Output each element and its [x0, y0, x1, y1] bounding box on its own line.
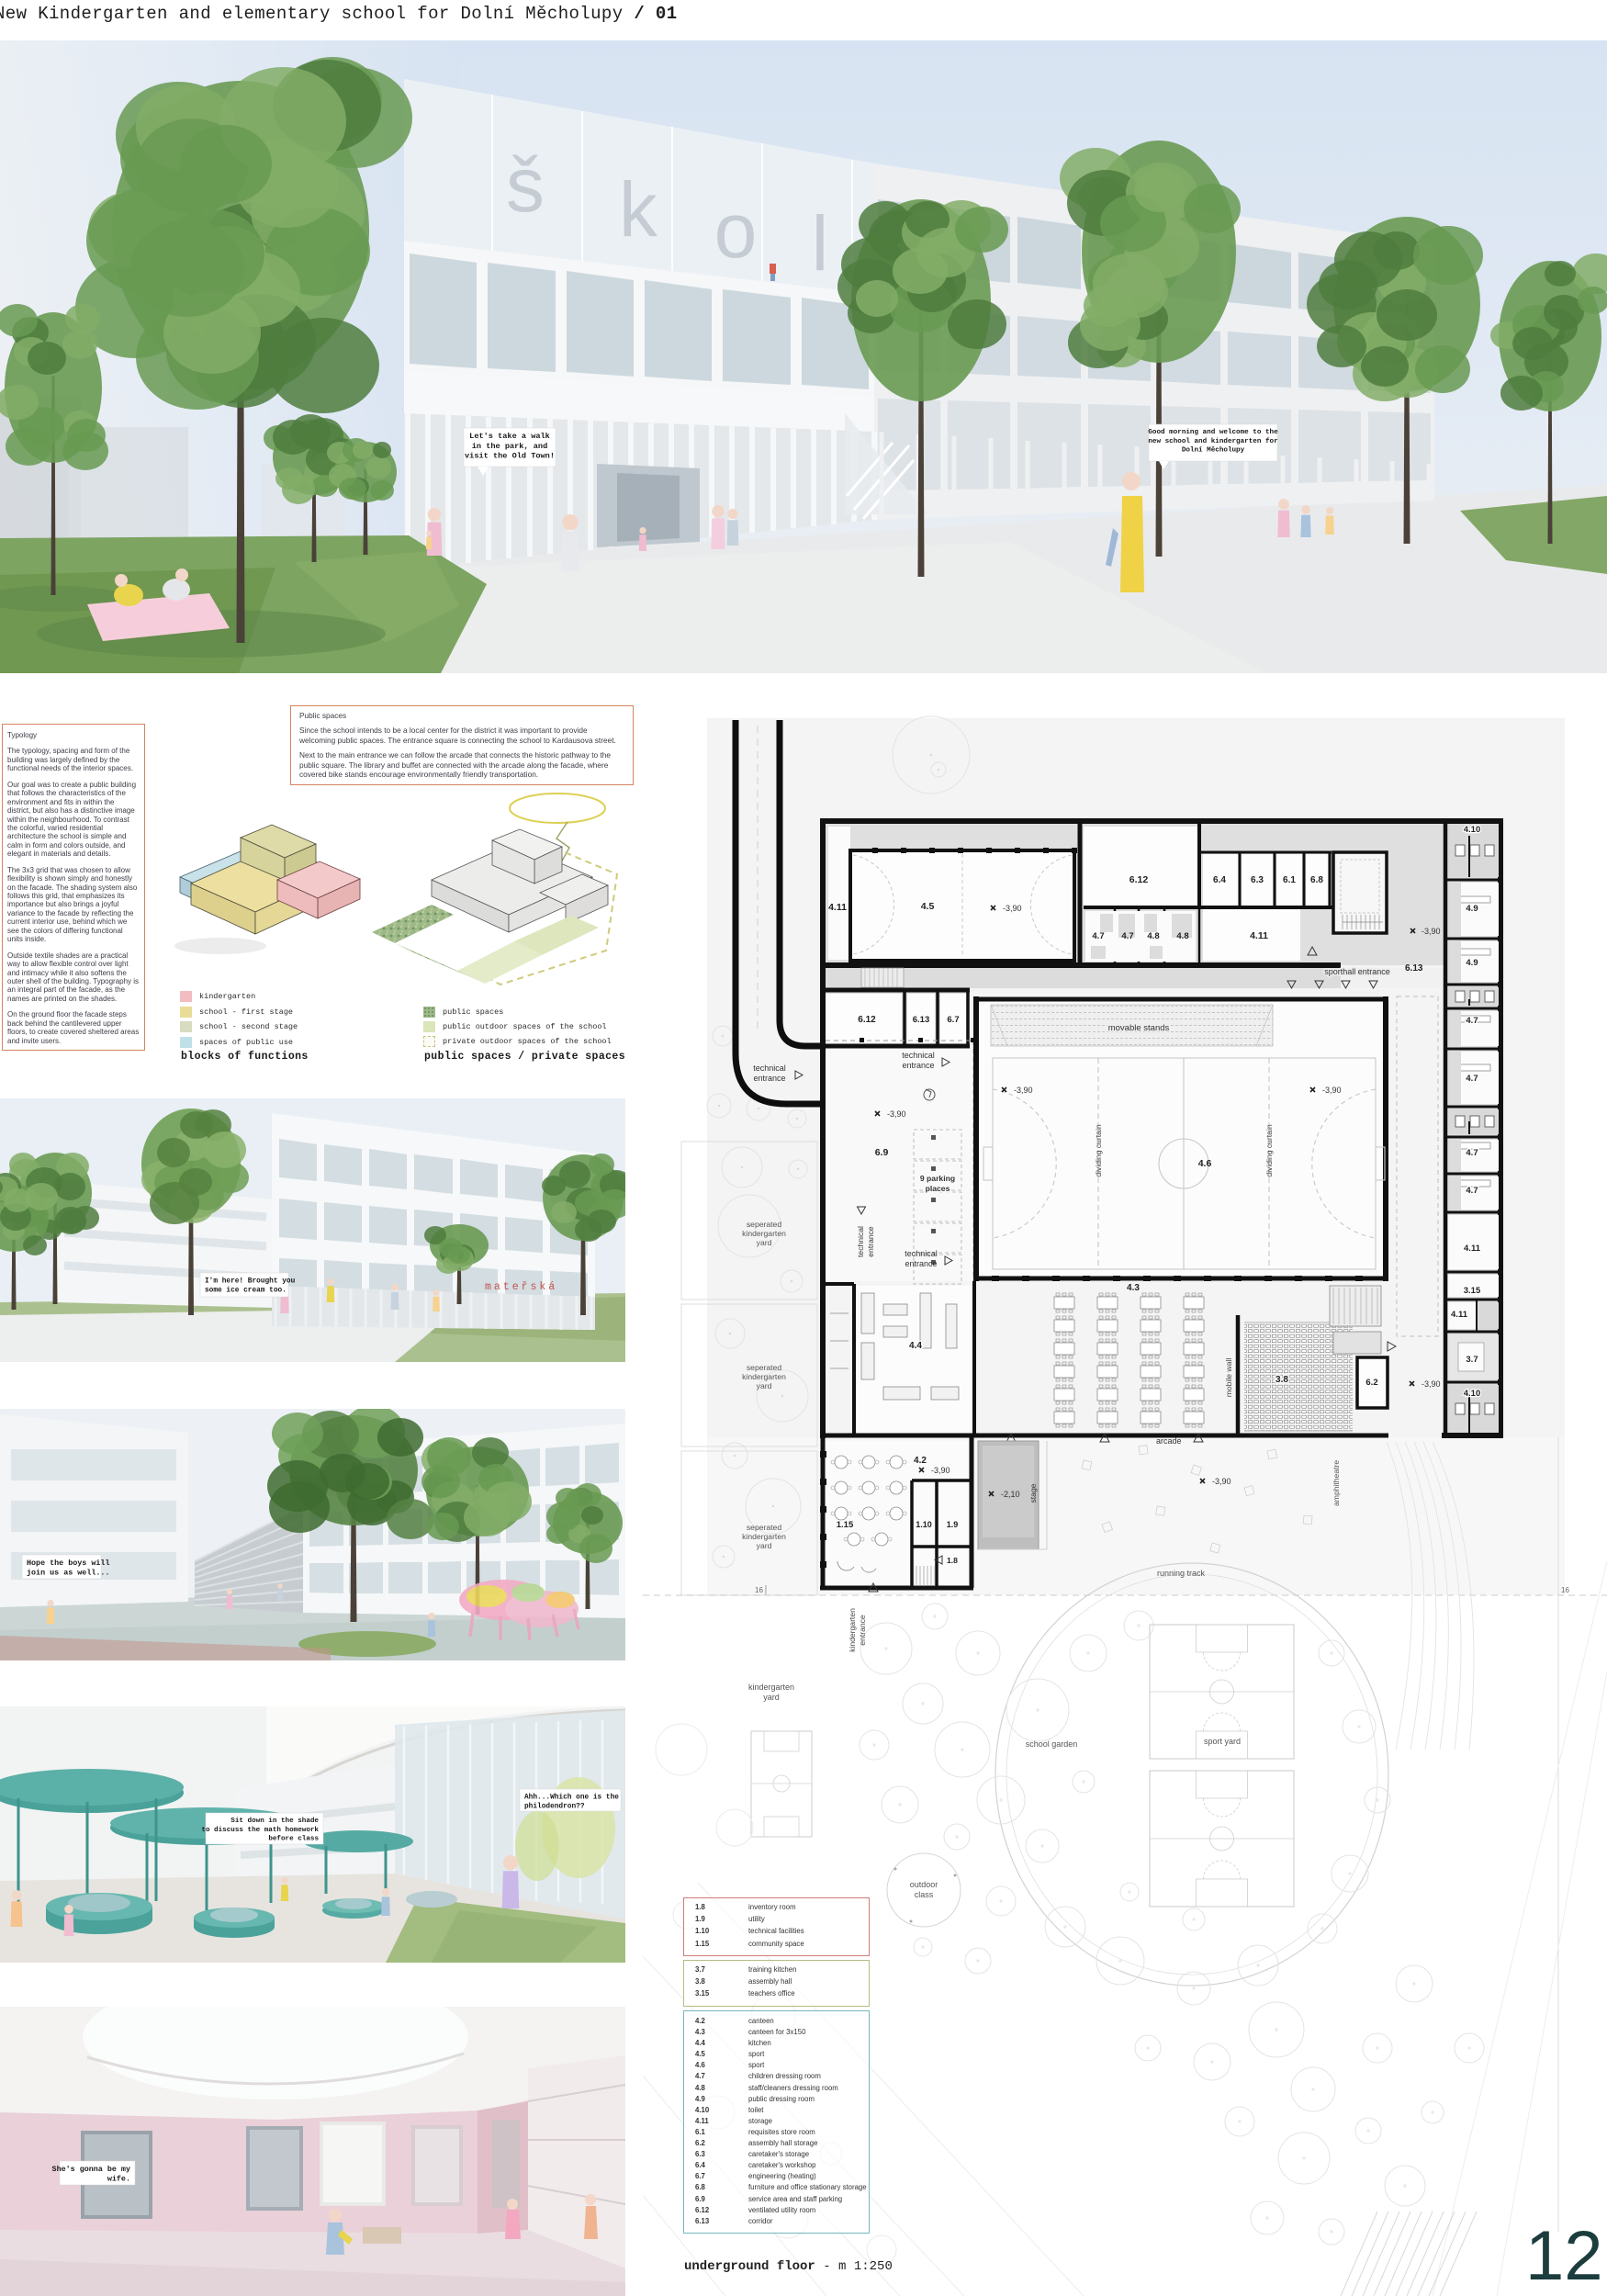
svg-text:in the park, and: in the park, and: [472, 442, 548, 451]
svg-text:-3,90: -3,90: [1422, 927, 1441, 936]
svg-text:Sit down in the shade: Sit down in the shade: [230, 1818, 319, 1825]
svg-text:3.7: 3.7: [1466, 1355, 1478, 1365]
svg-text:3.8: 3.8: [1275, 1375, 1288, 1385]
svg-text:entrance: entrance: [866, 1226, 875, 1257]
svg-text:class: class: [915, 1890, 934, 1899]
svg-text:entrance: entrance: [905, 1259, 937, 1268]
svg-text:4.7: 4.7: [1466, 1074, 1478, 1084]
svg-text:sporthall entrance: sporthall entrance: [1324, 967, 1390, 976]
svg-text:new school and kindergarten fo: new school and kindergarten for: [1148, 438, 1278, 445]
svg-text:6.12: 6.12: [858, 1015, 876, 1025]
svg-text:4.7: 4.7: [1121, 931, 1133, 941]
svg-text:seperated: seperated: [747, 1523, 781, 1532]
svg-text:4.7: 4.7: [1092, 931, 1104, 941]
svg-text:6.3: 6.3: [1251, 875, 1264, 885]
svg-text:4.11: 4.11: [1250, 930, 1268, 941]
svg-text:1.8: 1.8: [947, 1556, 958, 1565]
svg-text:3.15: 3.15: [1464, 1286, 1481, 1296]
svg-text:6.7: 6.7: [947, 1015, 959, 1025]
svg-text:l: l: [812, 200, 829, 287]
svg-text:dividing curtain: dividing curtain: [1094, 1124, 1103, 1177]
svg-text:-3,90: -3,90: [1322, 1086, 1342, 1095]
svg-text:6.1: 6.1: [1283, 875, 1296, 885]
svg-text:mateřská: mateřská: [485, 1281, 557, 1293]
svg-text:before class: before class: [268, 1836, 319, 1843]
svg-text:6.9: 6.9: [875, 1147, 889, 1158]
svg-text:4.7: 4.7: [1466, 1186, 1478, 1196]
svg-text:join us as well...: join us as well...: [27, 1569, 109, 1578]
svg-text:4.7: 4.7: [1466, 1148, 1478, 1158]
svg-text:running track: running track: [1157, 1569, 1206, 1578]
svg-text:4.8: 4.8: [1147, 931, 1159, 941]
svg-text:4.4: 4.4: [909, 1341, 922, 1351]
svg-text:yard: yard: [757, 1238, 772, 1247]
svg-text:mobile wall: mobile wall: [1224, 1358, 1233, 1398]
svg-text:4.11: 4.11: [1464, 1244, 1481, 1254]
svg-text:4.11: 4.11: [1451, 1310, 1468, 1320]
svg-text:Dolní Měcholupy: Dolní Měcholupy: [1182, 447, 1245, 455]
svg-text:technical: technical: [753, 1064, 786, 1073]
svg-text:Good morning and welcome to th: Good morning and welcome to the: [1148, 429, 1278, 436]
svg-text:4.10: 4.10: [1464, 825, 1481, 835]
svg-text:kindergarten: kindergarten: [848, 1608, 857, 1652]
svg-text:4.9: 4.9: [1466, 904, 1478, 914]
svg-text:-3,90: -3,90: [1422, 1379, 1441, 1389]
svg-text:sport yard: sport yard: [1204, 1737, 1241, 1746]
svg-text:kindergarten: kindergarten: [742, 1229, 786, 1238]
svg-text:school garden: school garden: [1026, 1739, 1078, 1749]
svg-text:outdoor: outdoor: [910, 1880, 938, 1889]
svg-text:entrance: entrance: [902, 1061, 934, 1070]
svg-text:to discuss the math homework: to discuss the math homework: [201, 1827, 319, 1834]
svg-text:Ahh...Which one is the: Ahh...Which one is the: [524, 1794, 619, 1801]
svg-text:4.7: 4.7: [1466, 1016, 1478, 1026]
svg-text:16: 16: [755, 1586, 763, 1594]
svg-text:6.13: 6.13: [913, 1015, 930, 1025]
svg-text:-2,10: -2,10: [1001, 1490, 1020, 1499]
svg-text:kindergarten: kindergarten: [742, 1372, 786, 1381]
svg-text:-3,90: -3,90: [1003, 904, 1022, 913]
svg-text:4.11: 4.11: [828, 902, 847, 913]
svg-text:-3,90: -3,90: [1212, 1477, 1231, 1486]
svg-text:4.2: 4.2: [914, 1456, 927, 1466]
svg-text:places: places: [926, 1184, 950, 1193]
svg-text:1.10: 1.10: [916, 1520, 932, 1529]
svg-text:Let's take a walk: Let's take a walk: [469, 432, 550, 441]
svg-text:-3,90: -3,90: [931, 1466, 950, 1475]
svg-text:1.15: 1.15: [837, 1520, 854, 1530]
svg-text:movable stands: movable stands: [1108, 1023, 1170, 1033]
svg-text:amphitheatre: amphitheatre: [1332, 1460, 1341, 1506]
svg-text:She's gonna be my: She's gonna be my: [52, 2165, 130, 2174]
svg-text:9 parking: 9 parking: [920, 1174, 955, 1183]
svg-text:seperated: seperated: [747, 1363, 781, 1372]
svg-text:philodendron??: philodendron??: [524, 1803, 585, 1810]
svg-text:kindergarten: kindergarten: [748, 1683, 794, 1692]
svg-text:16: 16: [1561, 1586, 1569, 1594]
svg-text:6.13: 6.13: [1405, 963, 1423, 974]
svg-text:I'm here! Brought you: I'm here! Brought you: [205, 1277, 296, 1285]
svg-text:4.5: 4.5: [921, 901, 935, 912]
svg-text:entrance: entrance: [858, 1615, 867, 1646]
svg-text:o: o: [714, 187, 758, 274]
svg-text:dividing curtain: dividing curtain: [1264, 1124, 1274, 1177]
svg-text:4.3: 4.3: [1127, 1283, 1140, 1293]
svg-text:4.10: 4.10: [1464, 1389, 1481, 1399]
svg-text:4.9: 4.9: [1466, 958, 1478, 968]
svg-text:stage: stage: [1028, 1483, 1038, 1503]
svg-text:-3,90: -3,90: [1014, 1086, 1033, 1095]
svg-text:some ice cream too.: some ice cream too.: [205, 1287, 287, 1294]
svg-text:kindergarten: kindergarten: [742, 1532, 786, 1541]
svg-text:6.12: 6.12: [1129, 874, 1149, 885]
svg-text:6.4: 6.4: [1213, 875, 1226, 885]
svg-text:Hope the boys will: Hope the boys will: [27, 1559, 109, 1568]
svg-text:technical: technical: [856, 1226, 865, 1257]
svg-text:k: k: [619, 166, 658, 253]
svg-text:-3,90: -3,90: [887, 1109, 906, 1119]
svg-text:š: š: [506, 141, 545, 228]
svg-text:4.8: 4.8: [1176, 931, 1188, 941]
svg-text:4.6: 4.6: [1198, 1158, 1212, 1169]
svg-text:seperated: seperated: [747, 1220, 781, 1229]
svg-text:1.9: 1.9: [947, 1520, 959, 1529]
svg-text:6.8: 6.8: [1310, 875, 1323, 885]
svg-text:6.2: 6.2: [1365, 1378, 1377, 1388]
svg-text:arcade: arcade: [1156, 1436, 1182, 1446]
svg-text:wife.: wife.: [107, 2175, 130, 2184]
svg-text:entrance: entrance: [753, 1074, 785, 1083]
svg-text:yard: yard: [763, 1693, 780, 1702]
svg-text:yard: yard: [757, 1541, 772, 1550]
svg-text:visit the Old Town!: visit the Old Town!: [465, 452, 555, 461]
svg-text:technical: technical: [905, 1249, 938, 1258]
svg-text:yard: yard: [757, 1381, 772, 1390]
svg-text:technical: technical: [902, 1051, 935, 1060]
